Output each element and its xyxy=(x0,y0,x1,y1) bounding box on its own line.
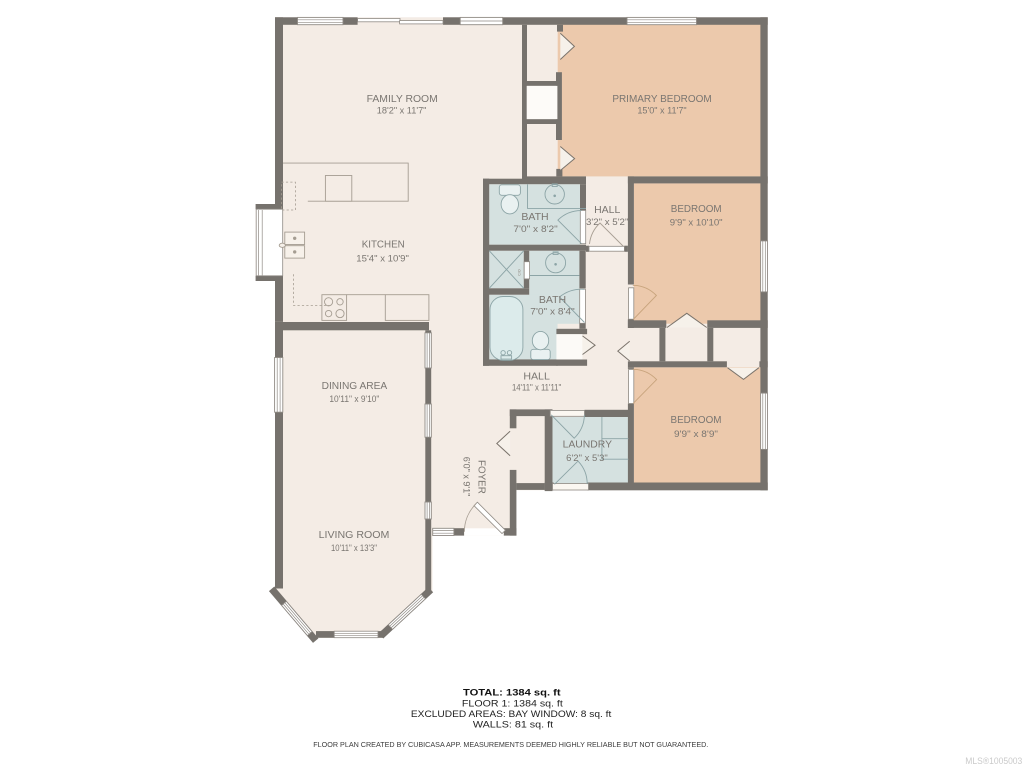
svg-text:6'0" x 9'1": 6'0" x 9'1" xyxy=(461,457,471,497)
svg-text:LAUNDRY: LAUNDRY xyxy=(563,439,612,450)
svg-text:FAMILY ROOM: FAMILY ROOM xyxy=(367,94,438,105)
svg-text:9'9" x 10'10": 9'9" x 10'10" xyxy=(670,218,723,228)
svg-text:BEDROOM: BEDROOM xyxy=(671,415,722,426)
svg-text:9'9" x 8'9": 9'9" x 8'9" xyxy=(674,429,718,439)
svg-text:HALL: HALL xyxy=(523,371,550,382)
svg-text:BATH: BATH xyxy=(521,212,548,223)
svg-text:10'11" x 13'3": 10'11" x 13'3" xyxy=(331,543,377,553)
svg-text:FLOOR 1: 1384 sq. ft: FLOOR 1: 1384 sq. ft xyxy=(462,698,563,708)
svg-text:18'2" x 11'7": 18'2" x 11'7" xyxy=(377,105,427,115)
svg-text:TOTAL: 1384 sq. ft: TOTAL: 1384 sq. ft xyxy=(463,688,561,698)
svg-text:C/O: C/O xyxy=(518,269,522,276)
svg-text:WALLS: 81 sq. ft: WALLS: 81 sq. ft xyxy=(473,719,554,729)
svg-text:15'0" x 11'7": 15'0" x 11'7" xyxy=(637,105,686,115)
svg-text:6'2" x 5'3": 6'2" x 5'3" xyxy=(566,453,608,463)
svg-text:DINING AREA: DINING AREA xyxy=(322,381,388,392)
svg-text:BATH: BATH xyxy=(539,295,566,306)
svg-text:14'11" x 11'11": 14'11" x 11'11" xyxy=(512,382,561,392)
svg-text:MLS®1005003: MLS®1005003 xyxy=(965,756,1022,766)
svg-text:FLOOR PLAN CREATED BY CUBICASA: FLOOR PLAN CREATED BY CUBICASA APP. MEAS… xyxy=(313,740,708,749)
svg-text:BEDROOM: BEDROOM xyxy=(671,204,722,215)
svg-text:7'0" x 8'4": 7'0" x 8'4" xyxy=(530,307,574,317)
svg-text:7'0" x 8'2": 7'0" x 8'2" xyxy=(513,224,557,234)
svg-text:PRIMARY BEDROOM: PRIMARY BEDROOM xyxy=(612,94,711,105)
svg-text:EXCLUDED AREAS: BAY WINDOW: 8: EXCLUDED AREAS: BAY WINDOW: 8 sq. ft xyxy=(411,709,612,719)
svg-text:15'4" x 10'9": 15'4" x 10'9" xyxy=(356,253,409,263)
svg-text:HALL: HALL xyxy=(594,205,620,216)
svg-text:LIVING ROOM: LIVING ROOM xyxy=(319,530,390,541)
svg-text:3'2" x 5'2": 3'2" x 5'2" xyxy=(586,217,628,227)
svg-text:10'11" x 9'10": 10'11" x 9'10" xyxy=(329,394,379,404)
svg-text:FOYER: FOYER xyxy=(475,460,486,494)
svg-text:KITCHEN: KITCHEN xyxy=(362,239,405,250)
